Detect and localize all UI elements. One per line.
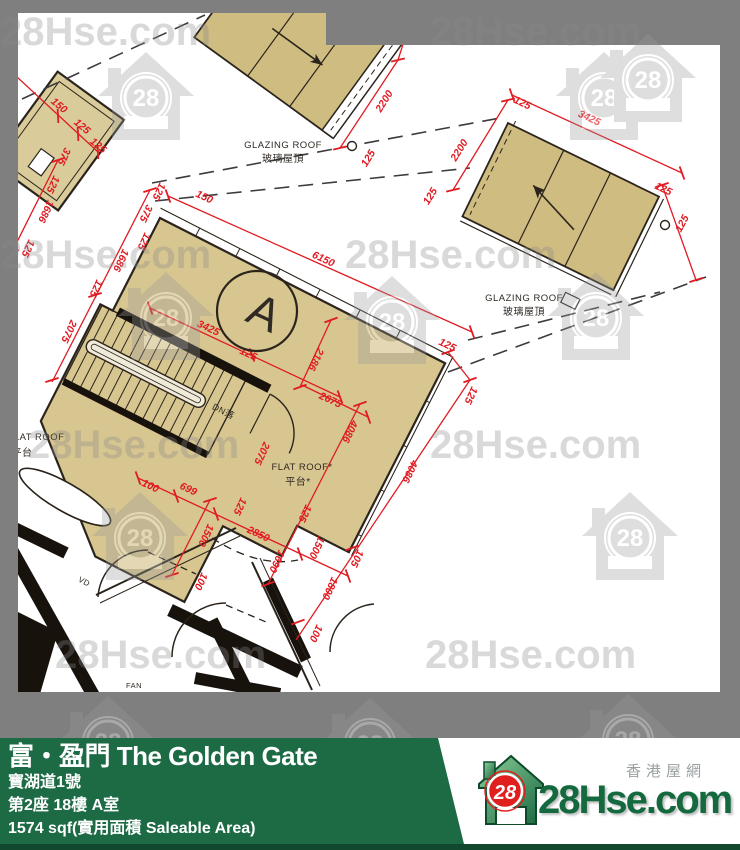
- footer-bar-dark-strip: [0, 844, 740, 850]
- brand-site-name[interactable]: 28Hse.com: [538, 778, 731, 823]
- property-address: 寶湖道1號: [8, 771, 317, 794]
- plan-label: FLAT ROOF*: [271, 462, 332, 473]
- plan-label: FAN: [126, 681, 142, 690]
- plan-label: 平台*: [285, 475, 310, 488]
- watermark-text: 28Hse.com: [0, 10, 211, 54]
- watermark-text: 28Hse.com: [430, 423, 641, 467]
- property-title: 富・盈門 The Golden Gate: [8, 741, 317, 771]
- logo-number: 28: [493, 782, 517, 804]
- floor-plan-page: 28: [0, 0, 740, 850]
- plan-label: 玻璃屋頂: [503, 305, 545, 318]
- plan-label: 玻璃屋頂: [262, 152, 304, 165]
- brand-panel: 香港屋網 28 28Hse.com: [438, 738, 740, 844]
- plan-label: GLAZING ROOF: [485, 293, 563, 304]
- property-unit: 第2座 18樓 A室: [8, 794, 317, 817]
- watermark-text: 28Hse.com: [55, 633, 266, 677]
- corner-dot: [661, 221, 670, 230]
- watermark-text: 28Hse.com: [0, 233, 211, 277]
- floor-plan-image: 28: [0, 0, 740, 738]
- 28hse-house-logo-icon: 28: [476, 754, 546, 828]
- property-area: 1574 sqf(實用面積 Saleable Area): [8, 817, 317, 840]
- watermark-text: 28Hse.com: [430, 10, 641, 54]
- corner-dot: [348, 142, 357, 151]
- watermark-text: 28Hse.com: [425, 633, 636, 677]
- watermark-text: 28Hse.com: [28, 423, 239, 467]
- watermark-text: 28Hse.com: [345, 233, 556, 277]
- property-info: 富・盈門 The Golden Gate 寶湖道1號 第2座 18樓 A室 15…: [8, 741, 317, 840]
- plan-label: GLAZING ROOF: [244, 140, 322, 151]
